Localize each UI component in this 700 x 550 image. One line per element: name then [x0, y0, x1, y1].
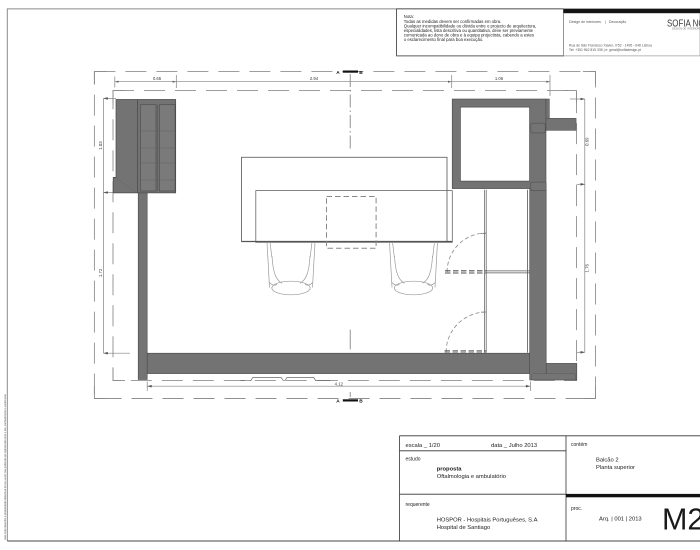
svg-text:M25: M25: [662, 503, 700, 537]
svg-text:4.12: 4.12: [335, 381, 344, 386]
svg-text:1.72: 1.72: [98, 268, 103, 277]
svg-text:o esclarecimento final para bo: o esclarecimento final para boa execução…: [404, 37, 484, 42]
svg-text:Hospital de Santiago: Hospital de Santiago: [437, 525, 491, 531]
svg-text:B: B: [359, 399, 363, 405]
svg-text:B: B: [359, 70, 363, 76]
svg-text:contém: contém: [571, 442, 587, 448]
svg-text:escala _ 1/20: escala _ 1/20: [406, 443, 440, 449]
svg-text:estudo: estudo: [406, 456, 421, 462]
svg-text:DESIGN DE INTERIORES & DEC: DESIGN DE INTERIORES & DEC: [672, 27, 700, 31]
svg-text:1.03: 1.03: [98, 141, 103, 150]
svg-text:Arq. | 001 | 2013: Arq. | 001 | 2013: [599, 516, 642, 522]
svg-text:A: A: [336, 70, 340, 76]
svg-text:Tel: +351 962 815 335 | e: g: Tel: +351 962 815 335 | e: geral@sofiade…: [569, 48, 641, 52]
svg-text:0.69: 0.69: [584, 137, 589, 146]
svg-text:Planta superior: Planta superior: [596, 465, 635, 471]
svg-text:2.94: 2.94: [310, 76, 319, 81]
svg-text:Design de interiores | De: Design de interiores | Decoração: [569, 20, 626, 24]
svg-text:Oftalmologia e ambulatório: Oftalmologia e ambulatório: [437, 474, 506, 480]
svg-text:nota: Este desenho e proprieda: nota: Este desenho e propriedade intelec…: [3, 394, 7, 541]
svg-text:A: A: [336, 399, 340, 405]
svg-text:HOSPOR - Hospitais Portuguêses: HOSPOR - Hospitais Portuguêses, S.A: [437, 518, 538, 524]
svg-text:proc.: proc.: [571, 506, 582, 512]
svg-text:Balcão 2: Balcão 2: [596, 458, 619, 464]
svg-text:0.65: 0.65: [153, 76, 162, 81]
svg-text:data _ Julho 2013: data _ Julho 2013: [491, 443, 537, 449]
svg-text:Rua de São Francisco Xavier, n: Rua de São Francisco Xavier, nº52 - 1495…: [569, 44, 652, 48]
svg-text:1.76: 1.76: [584, 264, 589, 273]
svg-text:1.06: 1.06: [495, 76, 504, 81]
svg-text:proposta: proposta: [437, 467, 463, 473]
svg-text:requerente: requerente: [406, 502, 430, 508]
